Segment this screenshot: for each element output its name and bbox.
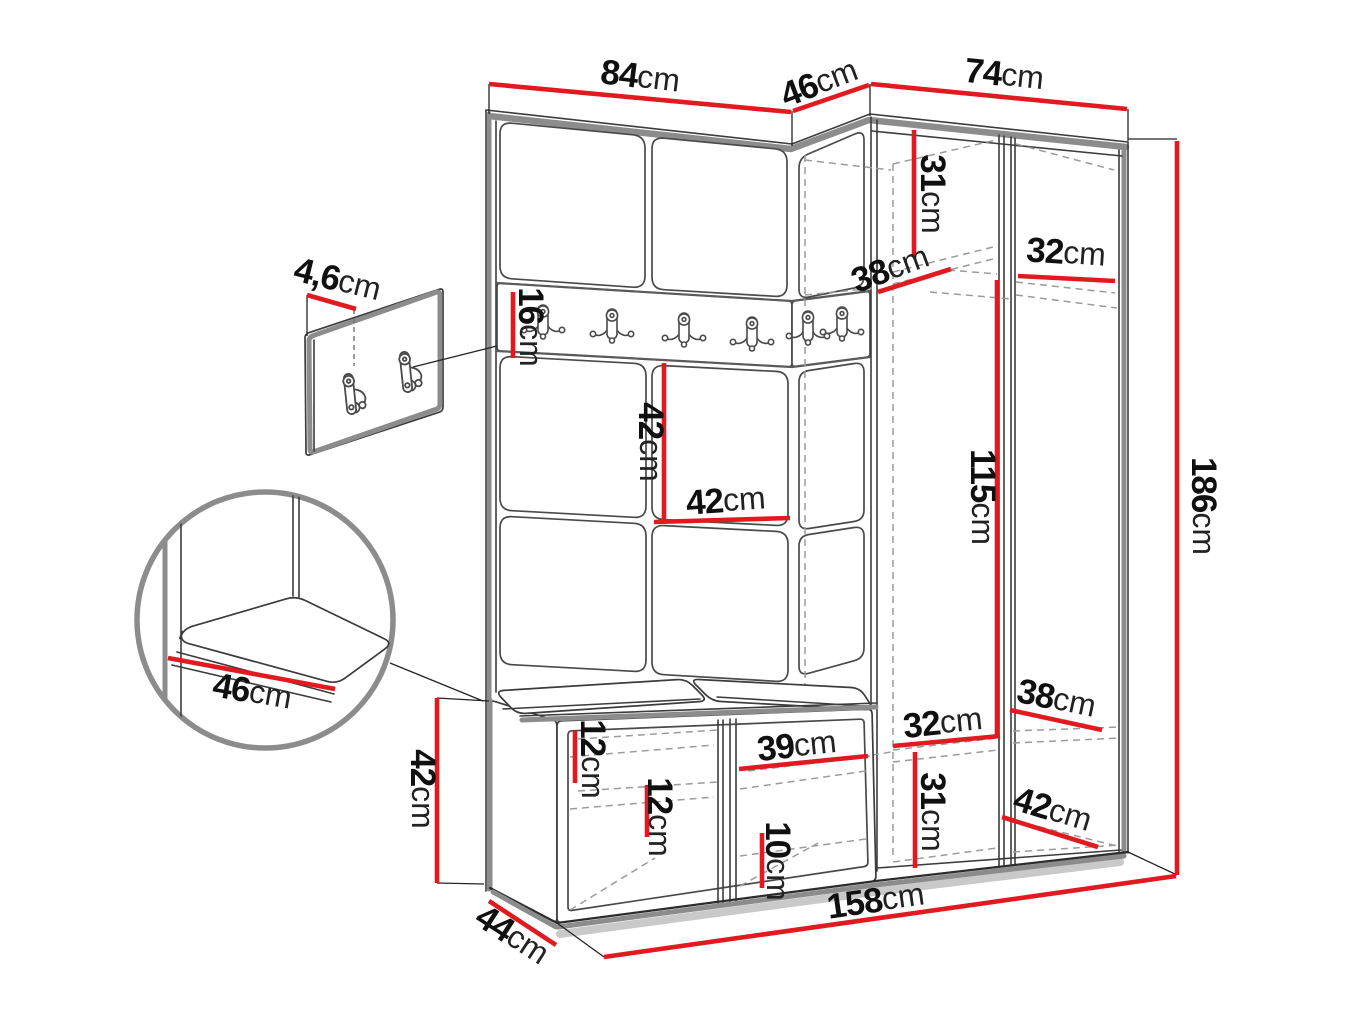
corner-section	[799, 133, 864, 674]
dimension-top-width-corner: 46cm	[775, 50, 870, 116]
dimension-bottom-gap-height: 10cm	[758, 821, 797, 901]
edge-line	[893, 750, 998, 762]
dimension-label: 186cm	[1184, 457, 1223, 555]
edge-line	[1013, 727, 1120, 731]
dimension-label: 12cm	[640, 777, 679, 857]
dimension-label: 12cm	[573, 719, 612, 799]
dimension-label: 16cm	[511, 287, 550, 367]
dimension-diagram-page: 84cm46cm74cm4,6cm16cm31cm38cm32cm42cm42c…	[0, 0, 1369, 1027]
corner-panel	[799, 363, 864, 528]
dimension-label: 115cm	[963, 449, 1002, 545]
edge-line	[1016, 295, 1117, 308]
dimension-label: 31cm	[913, 154, 952, 234]
bench-left-side	[490, 701, 557, 921]
wall-panel	[652, 526, 788, 682]
edge-line	[1013, 738, 1120, 743]
dimension-bottom-shelf-width: 32cm	[893, 699, 1000, 746]
dimension-line	[1018, 276, 1115, 281]
dimension-label: 46cm	[775, 50, 863, 115]
dimension-label: 42cm	[685, 479, 767, 523]
dimension-shoe-shelf-gap-1: 12cm	[573, 719, 612, 799]
hallway-furniture-dimension-diagram: 84cm46cm74cm4,6cm16cm31cm38cm32cm42cm42c…	[0, 0, 1369, 1027]
dimension-label: 32cm	[1025, 231, 1107, 275]
dimension-top-shelf-width: 32cm	[1018, 231, 1115, 281]
wall-panel	[500, 517, 646, 672]
callout-pointer	[390, 663, 483, 701]
edge-line	[948, 270, 997, 274]
dimension-label: 10cm	[758, 821, 797, 901]
dimension-label: 31cm	[913, 772, 952, 852]
dimension-total-height: 186cm	[1128, 139, 1223, 875]
edge-line	[1016, 144, 1114, 170]
dimension-label: 4,6cm	[290, 250, 385, 309]
dimension-label: 42cm	[631, 402, 670, 482]
dimension-bench-height: 42cm	[403, 698, 489, 884]
dimension-top-shelf-height: 31cm	[913, 130, 952, 257]
dimension-extension-line	[437, 883, 484, 884]
seat-detail-callout	[137, 490, 483, 750]
wall-panel	[500, 357, 646, 518]
dimension-extension-line	[1128, 852, 1177, 875]
edge-line	[1016, 282, 1115, 293]
wall-panel	[652, 138, 787, 296]
dimension-rail-height: 16cm	[511, 287, 550, 367]
dimension-bottom-shelf-depth: 38cm	[1010, 671, 1102, 730]
dimension-hanging-height: 115cm	[963, 280, 1002, 735]
dimension-label: 74cm	[963, 51, 1046, 98]
dimension-floor-depth: 42cm	[1002, 780, 1098, 847]
dimension-label: 42cm	[403, 749, 442, 829]
shoe-bench	[490, 679, 877, 922]
wall-panel	[500, 123, 645, 287]
dimension-extension-line	[437, 698, 489, 701]
corner-panel	[799, 527, 864, 674]
dimension-shoe-shelf-gap-2: 12cm	[640, 777, 679, 857]
dimension-bottom-section-height: 31cm	[913, 752, 952, 868]
